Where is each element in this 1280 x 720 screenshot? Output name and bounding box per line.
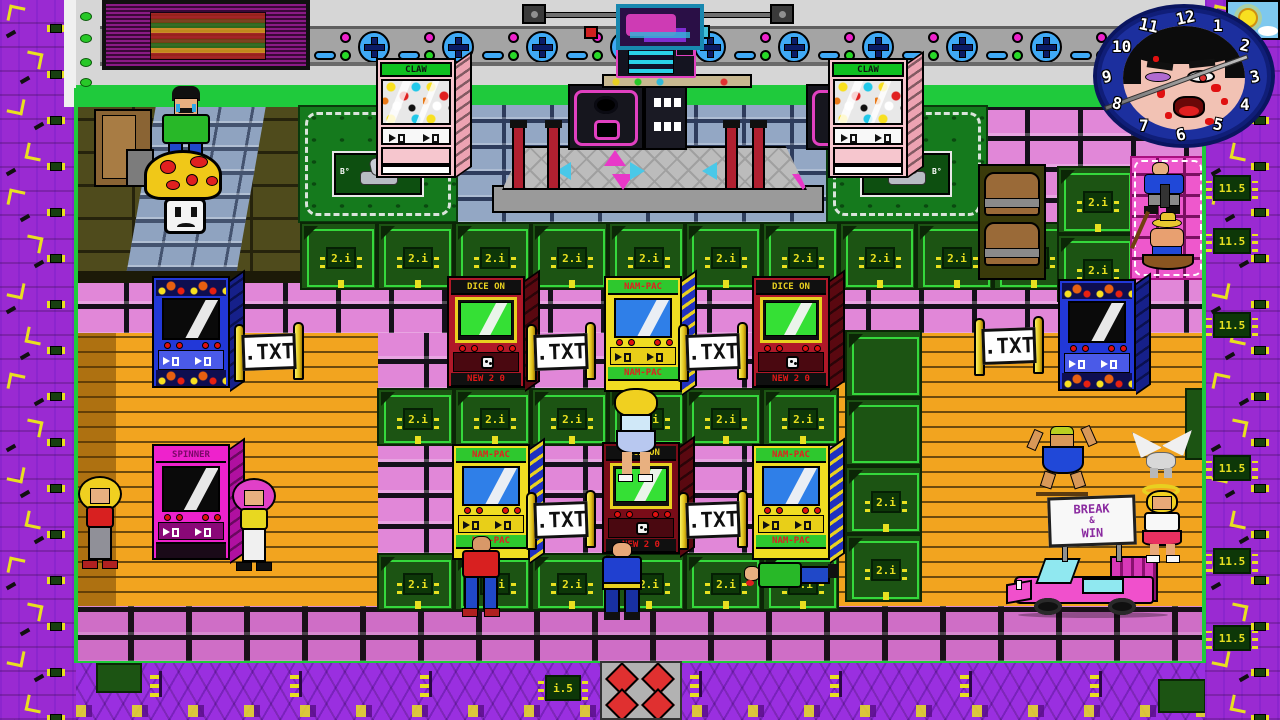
man-lying-down[interactable] — [744, 556, 840, 608]
crate-tick — [723, 601, 729, 609]
chip-pins-right — [582, 680, 588, 700]
leg — [1150, 468, 1158, 478]
crate-corner — [381, 226, 395, 240]
claw-base — [833, 147, 903, 165]
paint-drip — [80, 12, 92, 21]
face — [90, 488, 110, 504]
supply-crate[interactable]: 2.i — [845, 534, 922, 602]
shoe — [828, 564, 838, 578]
cab-side — [830, 437, 845, 564]
arcade-scene: i.511.511.511.511.511.511.511.5B°B°B°B°2… — [0, 0, 1280, 720]
grass-mark: B° — [932, 167, 946, 179]
cab-button — [497, 345, 504, 352]
pip — [794, 362, 797, 365]
chip-pins-right — [665, 578, 670, 594]
stage-pillar — [725, 124, 738, 190]
cab-button — [776, 507, 783, 514]
halo-woman[interactable] — [1140, 484, 1188, 564]
nampac-marquee-label: NAM-PAC — [472, 450, 510, 460]
txt-sign-group[interactable]: .TXT — [678, 490, 748, 552]
shoe — [1166, 555, 1180, 563]
pip — [640, 526, 643, 529]
crate-corner — [535, 226, 549, 240]
circuit-mark — [33, 260, 44, 268]
joystick-icon — [195, 526, 221, 538]
txt-sign-label: .TXT — [983, 333, 1034, 359]
clock-number: 3 — [1248, 64, 1272, 88]
pip — [644, 528, 647, 531]
joy-box — [504, 521, 511, 530]
dice-marquee-label: DICE ON — [772, 282, 810, 292]
joy-arrow — [875, 134, 882, 142]
circuit-node — [1254, 668, 1266, 677]
circuit-trace — [1230, 603, 1249, 622]
cab-button — [802, 507, 809, 514]
chip-pins-right — [511, 578, 516, 594]
leg — [622, 452, 632, 474]
blood-spot — [1211, 84, 1221, 92]
pants — [800, 566, 830, 584]
chip-pins-left — [397, 578, 402, 594]
chip-pins-left — [551, 578, 556, 594]
supply-crate[interactable]: 2.i — [762, 388, 839, 446]
border-chip: 11.5 — [1213, 175, 1251, 201]
cab-panel — [608, 518, 674, 538]
cab-button — [176, 342, 183, 349]
txt-sign-label: .TXT — [687, 339, 738, 365]
cab-button — [1070, 345, 1077, 352]
claw-base — [381, 147, 451, 165]
cab-button — [202, 514, 209, 521]
border-chip: 11.5 — [1213, 312, 1251, 338]
cab-marquee: SPINNER — [156, 448, 226, 463]
cop-at-dice[interactable] — [598, 542, 646, 622]
floor-chip: i.5 — [545, 675, 581, 701]
crate-tick — [338, 280, 344, 288]
crate-chip-label: 2.i — [639, 252, 659, 265]
chip-pins-left — [782, 252, 787, 268]
mat-diamond — [605, 688, 639, 720]
crate-tick — [569, 280, 575, 288]
speaker-led — [674, 98, 681, 107]
bruised-eye — [1145, 72, 1171, 82]
cab-button — [202, 342, 209, 349]
circuit-mark — [33, 674, 44, 682]
supply-crate[interactable]: 2.i — [531, 222, 608, 290]
chip-pins-left — [705, 413, 710, 429]
claw-window — [381, 79, 451, 125]
man-red-shirt[interactable] — [460, 536, 504, 618]
break-win-line: WIN — [1081, 527, 1103, 540]
joystick-icon — [795, 519, 821, 531]
crate-chip: 2.i — [711, 247, 741, 269]
crate-chip: 2.i — [788, 247, 818, 269]
txt-sign-board: .TXT — [685, 333, 740, 371]
magenta-dot-icon — [1012, 32, 1023, 43]
speaker-led — [664, 98, 671, 107]
ladder-glyph — [830, 671, 842, 697]
cab-button — [814, 507, 821, 514]
leg — [1040, 471, 1056, 490]
magenta-dot-icon — [424, 32, 435, 43]
cab-bottom-band: NEW 2 0 — [451, 373, 521, 387]
joystick-icon — [841, 132, 867, 144]
nampac-bottom-label: NAM-PAC — [772, 536, 810, 546]
face — [244, 490, 264, 506]
floor-chip-label: i.5 — [553, 682, 573, 695]
magenta-dot-icon — [340, 32, 351, 43]
txt-sign-group[interactable]: .TXT — [526, 490, 596, 552]
supply-crate[interactable]: 2.i — [377, 222, 454, 290]
circuit-node — [1254, 254, 1266, 263]
joy-arrow — [763, 521, 770, 529]
joy-box — [850, 134, 857, 143]
claw-machine[interactable]: CLAW — [828, 58, 924, 178]
cab-panel — [158, 522, 224, 540]
speaker-column — [644, 84, 687, 150]
chip-pins-right — [902, 564, 907, 580]
circuit-trace — [7, 97, 26, 116]
cab-screen — [1068, 301, 1126, 343]
crate-tick — [877, 280, 883, 288]
cab-screen — [462, 466, 520, 506]
cab-button — [464, 507, 471, 514]
circuit-trace — [1230, 695, 1249, 714]
chip-pins-right — [1252, 554, 1258, 572]
chip-pins-right — [819, 413, 824, 429]
skirt — [616, 430, 656, 454]
circuit-node — [50, 576, 62, 585]
crate-tick — [415, 601, 421, 609]
circuit-mark — [19, 352, 30, 360]
crate-chip-label: 2.i — [870, 252, 890, 265]
joystick-icon — [195, 355, 221, 367]
crate-chip: 2.i — [634, 247, 664, 269]
jeans-leg — [483, 576, 498, 610]
paint-drip — [80, 58, 92, 67]
crate-chip: 2.i — [711, 408, 741, 430]
break-win-sign[interactable]: BREAK&WIN — [1048, 496, 1140, 566]
sack-strap — [984, 198, 1040, 208]
crate-chip-label: 2.i — [408, 413, 428, 426]
circuit-mark — [5, 582, 16, 590]
border-chip-label: 11.5 — [1219, 555, 1246, 568]
chip-pins-left — [1206, 461, 1212, 479]
crate-tick — [415, 280, 421, 288]
supply-crate[interactable]: 2.i — [531, 388, 608, 446]
chip-pins-left — [320, 252, 325, 268]
txt-sign-label: .TXT — [535, 507, 586, 533]
cab-panel — [458, 515, 524, 533]
crying-man-on-mushroom[interactable] — [138, 86, 226, 236]
cab-button — [614, 511, 621, 518]
shoe — [618, 474, 633, 482]
ladder-glyph — [960, 671, 972, 697]
paint-drip — [80, 78, 92, 87]
dice-marquee-label: DICE ON — [467, 282, 505, 292]
crate-tick — [723, 280, 729, 288]
cab-button — [664, 511, 671, 518]
chip-pins-right — [588, 413, 593, 429]
straw-hat-top — [1160, 212, 1176, 221]
crate-chip: 2.i — [403, 408, 433, 430]
circuit-trace — [1212, 373, 1231, 392]
chip-pins-right — [819, 252, 824, 268]
shoe — [256, 562, 272, 571]
pip — [489, 362, 492, 365]
crate-corner — [689, 392, 703, 406]
supply-crate[interactable] — [845, 398, 922, 466]
joy-box — [624, 353, 631, 362]
txt-sign-group[interactable]: .TXT — [678, 322, 748, 384]
glass-glare — [381, 79, 414, 125]
sack-strap — [984, 248, 1040, 258]
clock-number: 2 — [1238, 35, 1262, 59]
crate-chip-label: 2.i — [793, 413, 813, 426]
woman-blonde[interactable] — [78, 476, 126, 572]
cab-button — [514, 507, 521, 514]
crate-corner — [766, 226, 780, 240]
circuit-trace — [25, 511, 44, 530]
cab-button — [616, 339, 623, 346]
supply-crate[interactable]: 2.i — [845, 466, 922, 534]
txt-sign-group[interactable]: .TXT — [974, 316, 1044, 378]
circuit-node — [1254, 484, 1266, 493]
circuit-node — [1254, 162, 1266, 171]
cab-panel — [158, 350, 224, 370]
circuit-mark — [1210, 582, 1221, 590]
cab-button — [764, 507, 771, 514]
cab-button — [214, 342, 221, 349]
dice-icon — [636, 522, 649, 535]
wheel — [1108, 598, 1136, 615]
woman-pinkhair[interactable] — [232, 478, 280, 574]
woman-at-nampac[interactable] — [610, 388, 662, 484]
circuit-trace — [25, 695, 44, 714]
left-arrow-icon — [702, 162, 717, 180]
shoe — [462, 608, 478, 617]
txt-sign-group[interactable]: .TXT — [526, 322, 596, 384]
spinner-marquee-label: SPINNER — [172, 450, 210, 460]
joy-arrow — [841, 134, 848, 142]
crate-chip-label: 2.i — [485, 413, 505, 426]
chip-pins-left — [1206, 318, 1212, 336]
circuit-trace — [7, 465, 26, 484]
photo-bench — [1130, 156, 1206, 280]
chip-pins-left — [397, 252, 402, 268]
cab-button — [776, 345, 783, 352]
circuit-mark — [1238, 536, 1249, 544]
supply-crate[interactable]: 2.i — [685, 388, 762, 446]
crate-chip-label: 2.i — [716, 252, 736, 265]
crate-chip: 2.i — [480, 408, 510, 430]
cab-screen — [162, 466, 220, 512]
claw-side — [908, 51, 924, 178]
supply-crate[interactable]: 2.i — [454, 388, 531, 446]
crate-tick — [723, 436, 729, 444]
nampac-marquee-label: NAM-PAC — [772, 450, 810, 460]
nampac-cabinet[interactable]: NAM-PACNAM-PAC — [752, 444, 845, 562]
supply-crate[interactable]: 2.i — [377, 388, 454, 446]
crate-chip-label: 2.i — [562, 578, 582, 591]
walkway-green-box — [96, 663, 142, 693]
cab-button — [1082, 345, 1089, 352]
chip-pins-right — [665, 252, 670, 268]
joy-box — [472, 521, 479, 530]
up-arrow-icon — [604, 150, 626, 166]
circuit-node — [50, 70, 62, 79]
supply-crate[interactable]: 2.i — [300, 222, 377, 290]
supply-crate[interactable]: 2.i — [377, 553, 454, 611]
chip-pins-right — [1050, 252, 1055, 268]
supply-crate[interactable] — [845, 330, 922, 398]
chip-pins-right — [742, 252, 747, 268]
circuit-trace — [1230, 511, 1249, 530]
joy-arrow — [423, 134, 430, 142]
crate-tick — [800, 436, 806, 444]
crate-corner — [920, 226, 934, 240]
screen-streak — [777, 466, 818, 506]
green-shirt — [758, 562, 802, 588]
jumping-kid[interactable] — [1030, 424, 1096, 500]
dice-cabinet[interactable]: DICE ONNEW 2 0 — [752, 276, 845, 394]
crate-corner — [535, 392, 549, 406]
crate-corner — [849, 470, 863, 484]
blood-spot — [1165, 112, 1172, 119]
dpad-h — [1036, 44, 1057, 51]
joy-arrow — [1069, 360, 1076, 368]
circuit-mark — [1238, 674, 1249, 682]
red-shirt — [462, 550, 500, 578]
dice-icon — [786, 356, 799, 369]
crate-chip: 2.i — [403, 247, 433, 269]
green-dot-icon — [928, 50, 939, 61]
joy-arrow — [163, 528, 170, 536]
chip-pins-left — [538, 680, 544, 700]
joystick-icon — [1069, 358, 1095, 370]
cab-button — [652, 511, 659, 518]
crate-chip-label: 2.i — [331, 252, 351, 265]
speaker-led — [664, 122, 671, 131]
joystick-icon — [163, 526, 189, 538]
joy-arrow — [389, 134, 396, 142]
crate-tick — [492, 436, 498, 444]
border-chip-label: 11.5 — [1219, 235, 1246, 248]
joystick-icon — [875, 132, 901, 144]
row-boat — [1142, 254, 1194, 270]
chip-pins-right — [1252, 461, 1258, 479]
tongue — [1179, 106, 1199, 116]
clock-number: 11 — [1137, 14, 1161, 38]
cab-flame-base — [156, 370, 226, 386]
angel-creature[interactable] — [1132, 430, 1194, 482]
claw-machine[interactable]: CLAW — [376, 58, 472, 178]
crate-chip: 2.i — [1083, 191, 1113, 213]
border-chip-label: 11.5 — [1219, 462, 1246, 475]
circuit-mark — [1224, 214, 1235, 222]
circuit-trace — [7, 5, 26, 24]
claw-side — [456, 51, 472, 178]
crate-tick — [646, 601, 652, 609]
stage-pillar-cap — [750, 120, 767, 128]
cab-button — [176, 514, 183, 521]
cab-button — [1108, 345, 1115, 352]
fisherman-body — [1150, 228, 1184, 248]
mushroom-spot — [206, 176, 218, 186]
walkway-green-box — [1158, 679, 1205, 713]
pip — [485, 360, 488, 363]
supply-crate[interactable]: 2.i — [1057, 166, 1134, 234]
chip-pins-left — [551, 252, 556, 268]
chip-pins-right — [357, 252, 362, 268]
ladder-glyph — [420, 671, 432, 697]
green-shirt — [162, 114, 210, 144]
crate-tick — [1095, 224, 1101, 232]
crate-tick — [954, 280, 960, 288]
cab-side — [830, 269, 845, 392]
nampac-marquee-label: NAM-PAC — [624, 282, 662, 292]
crate-corner — [843, 226, 857, 240]
crate-tick — [569, 436, 575, 444]
circuit-node — [1254, 576, 1266, 585]
shoe — [638, 474, 653, 482]
leg — [1164, 468, 1172, 478]
chip-pins-right — [434, 252, 439, 268]
cab-front: NAM-PACNAM-PAC — [752, 444, 830, 560]
chip-pins-right — [1252, 234, 1258, 252]
up-arrow-icon — [799, 150, 821, 166]
crate-corner — [849, 402, 863, 416]
crate-chip-label: 2.i — [876, 564, 896, 577]
fisherman[interactable] — [1140, 216, 1200, 276]
joystick-icon — [163, 355, 189, 367]
speaker-port — [594, 120, 620, 140]
video-screen-content — [150, 12, 266, 60]
cab-bottom-band: NAM-PAC — [756, 535, 826, 549]
crate-chip-label: 2.i — [408, 252, 428, 265]
circuit-node — [50, 714, 62, 720]
circuit-mark — [19, 490, 30, 498]
circuit-trace — [1230, 419, 1249, 438]
chip-pins-left — [705, 252, 710, 268]
top — [86, 506, 114, 528]
crate-chip: 2.i — [557, 573, 587, 595]
claw-marquee-label: CLAW — [405, 65, 427, 75]
chip-pins-right — [434, 578, 439, 594]
blue-cabinet[interactable] — [152, 276, 245, 394]
joystick-icon — [763, 519, 789, 531]
joy-arrow — [795, 521, 802, 529]
border-chip: 11.5 — [1213, 625, 1251, 651]
joy-arrow — [495, 521, 502, 529]
claw-skirt — [833, 165, 903, 175]
crate-tick — [883, 592, 889, 600]
cab-front: DICE ONNEW 2 0 — [447, 276, 525, 388]
joy-box — [772, 521, 779, 530]
circuit-node — [1254, 438, 1266, 447]
blue-cabinet[interactable] — [1058, 279, 1151, 397]
cab-front: DICE ONNEW 2 0 — [752, 276, 830, 388]
supply-crate[interactable]: 2.i — [839, 222, 916, 290]
circuit-node — [50, 530, 62, 539]
circuit-node — [1254, 622, 1266, 631]
circuit-mark — [19, 628, 30, 636]
crate-chip: 2.i — [326, 247, 356, 269]
crate-chip-label: 2.i — [1088, 196, 1108, 209]
txt-sign-group[interactable]: .TXT — [234, 322, 304, 384]
chip-pins-right — [742, 413, 747, 429]
circuit-trace — [7, 373, 26, 392]
